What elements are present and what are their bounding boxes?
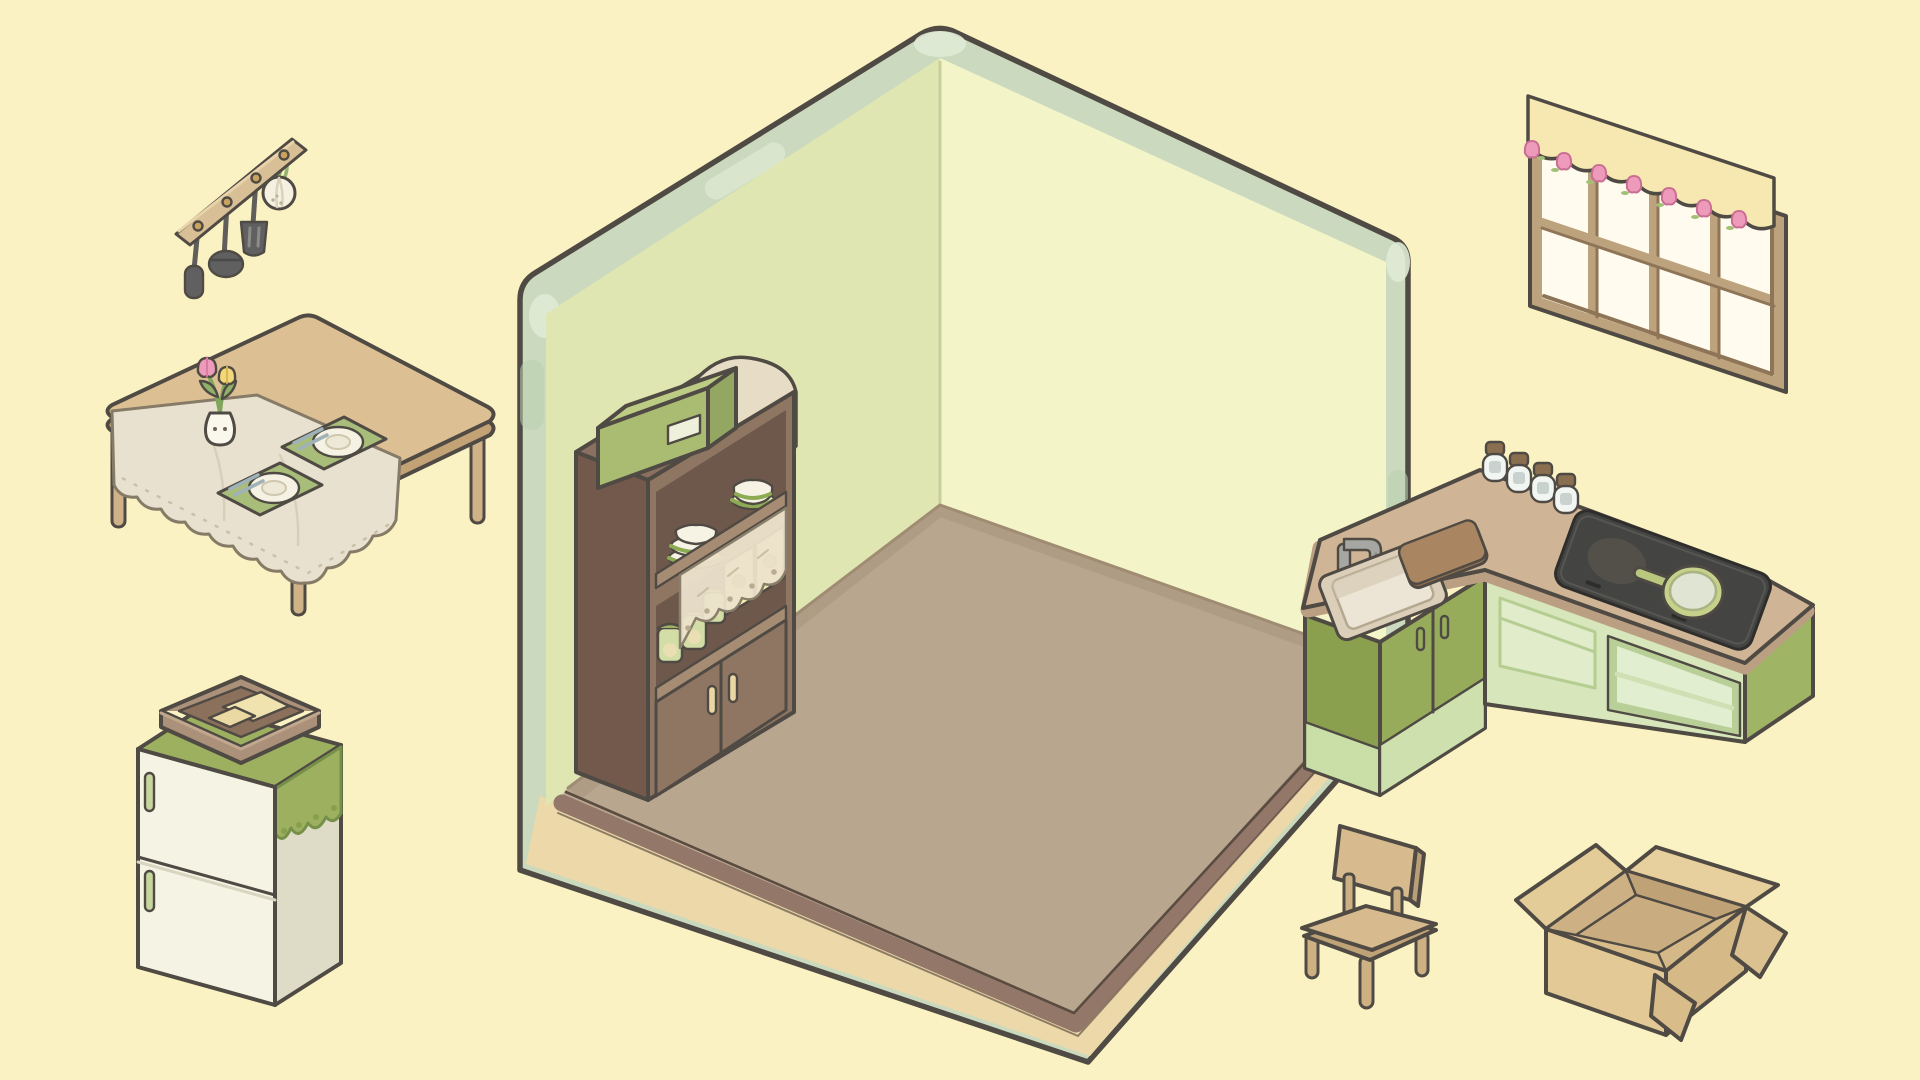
tulip-pink — [198, 358, 216, 377]
scene — [0, 0, 1920, 1080]
furniture-chair[interactable] — [1288, 818, 1448, 1018]
furniture-utensil-rack[interactable] — [168, 122, 358, 302]
furniture-cupboard[interactable] — [568, 330, 808, 830]
cupboard-side — [576, 452, 648, 800]
furniture-window[interactable] — [1522, 88, 1797, 403]
furniture-dining-table[interactable] — [100, 295, 485, 655]
furniture-refrigerator[interactable] — [103, 665, 353, 1015]
furniture-kitchen-counter[interactable] — [1295, 370, 1825, 790]
tulip-yellow — [219, 367, 235, 384]
fridge-front — [138, 749, 275, 1005]
furniture-cardboard-box[interactable] — [1508, 843, 1808, 1053]
